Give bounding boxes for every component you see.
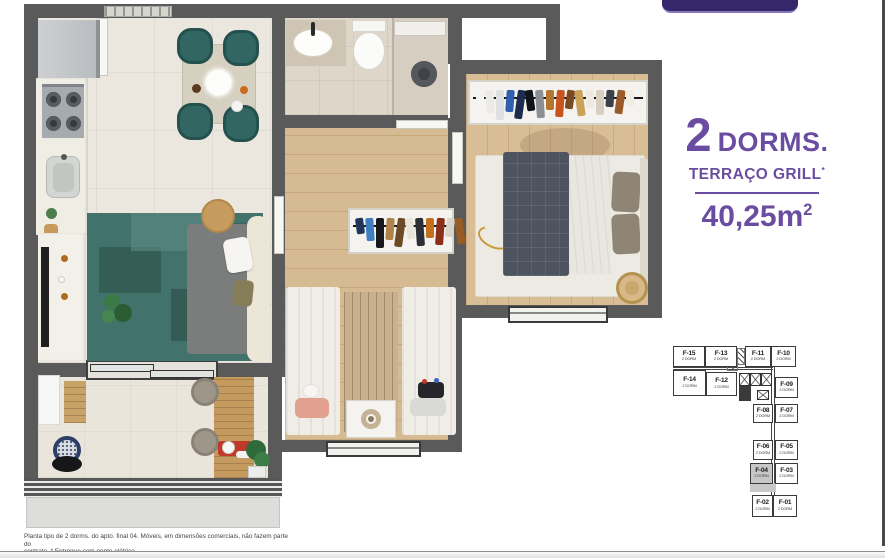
keyplan-unit-f-11: F-112 DORM [745, 346, 771, 367]
dining-chair [177, 28, 213, 64]
sheet-fold [569, 156, 611, 274]
keyplan-unit-f-05: F-052 DORM [775, 440, 798, 460]
pillow [611, 213, 641, 254]
keyplan-unit-f-01: F-012 DORM [773, 495, 797, 517]
dark-basket [52, 456, 82, 472]
keyplan-unit-f-08: F-082 DORM [753, 404, 773, 423]
clothes-row [356, 218, 448, 248]
terrace-pouf [191, 428, 219, 456]
dining-chair [177, 103, 213, 140]
cup [58, 276, 65, 283]
feature-text: TERRAÇO GRILL [689, 166, 822, 183]
floorplan-page: 2 DORMS. TERRAÇO GRILL* 40,25m2 F-152 DO… [0, 0, 885, 558]
elevator-icon [757, 390, 769, 400]
balcony-slab [26, 497, 280, 528]
caption-line1: Planta tipo de 2 dorms. do apto. final 0… [24, 533, 296, 548]
toilet-tank [352, 20, 386, 32]
hanging-garment [546, 90, 554, 110]
clothes-row [476, 90, 642, 120]
feature-footnote-mark: * [821, 165, 825, 175]
toy-dot-blue [434, 378, 439, 383]
hanging-garment [496, 90, 504, 120]
bedroom2-clothes-rack [348, 208, 454, 254]
stove [42, 84, 84, 138]
pouf [616, 272, 648, 304]
dining-chair [223, 30, 259, 66]
top-tab-button[interactable] [662, 0, 798, 13]
terrace-railing [24, 478, 282, 497]
keyplan-unit-f-10: F-102 DORM [771, 346, 796, 367]
hanging-garment [585, 90, 594, 109]
burner [66, 116, 81, 131]
keyplan-unit-f-13: F-132 DORM [705, 346, 737, 367]
hanging-garment [365, 218, 375, 242]
hanging-garment [605, 90, 614, 108]
info-panel: 2 DORMS. TERRAÇO GRILL* 40,25m2 [665, 114, 849, 234]
plant-pot [46, 208, 57, 219]
stair-core [739, 386, 751, 401]
pillow [611, 171, 641, 212]
laundry-cabinet [38, 375, 60, 425]
planter [248, 466, 266, 478]
bedroom2-door [274, 196, 284, 254]
dorms-label: DORMS. [718, 127, 829, 158]
leaf [102, 310, 115, 323]
sofa-pillow-white [222, 236, 254, 274]
drink [240, 86, 248, 94]
toy [418, 382, 444, 398]
fridge [38, 20, 100, 78]
kitchen-sink [46, 156, 80, 198]
hanging-garment [355, 218, 365, 235]
candle [61, 255, 68, 262]
keyplan: F-152 DORMF-132 DORMF-112 DORMF-102 DORM… [665, 342, 881, 527]
hanging-garment [596, 90, 604, 115]
area-number: 40,25m [702, 200, 804, 233]
leaf [114, 304, 132, 322]
hanging-garment [405, 218, 416, 240]
wall-terrace-right [268, 377, 282, 478]
plate [192, 84, 201, 93]
duvet-dark [503, 152, 569, 276]
elevator-icon [739, 373, 750, 386]
keyplan-unit-f-06: F-062 DORM [753, 440, 773, 460]
hanging-garment [415, 218, 425, 246]
bedroom2-window [326, 441, 421, 457]
nightstand [346, 400, 396, 438]
dorms-line: 2 DORMS. [685, 114, 828, 158]
terrace-sliding-door [86, 360, 218, 380]
keyplan-unit-f-03: F-032 DORM [775, 463, 798, 484]
table-centerpiece [206, 70, 231, 95]
wall-bathroom-left [272, 4, 285, 118]
shower-drain [411, 61, 437, 87]
sliding-panel [90, 364, 154, 372]
grill-table [214, 377, 254, 478]
kitchen-window [104, 6, 172, 17]
burner [46, 116, 61, 131]
sofa-pillow-olive [232, 279, 255, 307]
headboard [640, 158, 648, 294]
keyplan-unit-f-02: F-022 DORM [752, 495, 773, 517]
pillow-gray [410, 398, 446, 416]
hanging-garment [625, 90, 635, 107]
wall-right [648, 60, 662, 318]
decor-flower [304, 385, 318, 397]
hanging-garment [376, 218, 384, 248]
floorplan [0, 0, 662, 532]
keyplan-unit-f-14: F-142 DORM [673, 370, 706, 396]
dining-chair [223, 105, 259, 142]
dorms-number: 2 [685, 114, 711, 156]
hanging-garment [535, 90, 545, 118]
hanging-garment [485, 90, 495, 114]
wood-shelf [64, 381, 86, 423]
sink-basin [53, 163, 74, 192]
candle [61, 293, 68, 300]
terrace-pouf [191, 378, 219, 406]
white-cup [222, 441, 235, 454]
hanging-garment [555, 90, 565, 117]
bedroom1-window [508, 306, 608, 323]
vent-hatch [737, 348, 745, 365]
divider-line [695, 192, 819, 194]
sofa [187, 216, 269, 362]
wall-bath-right [448, 4, 462, 64]
shower-niche [394, 21, 446, 36]
elevator-icon [761, 373, 772, 386]
highlight-shade [750, 483, 776, 492]
keyplan-unit-f-12: F-122 DORM [706, 372, 737, 396]
hanging-garment [614, 90, 625, 115]
bathroom-door [396, 120, 448, 129]
bottom-divider-band [0, 551, 885, 558]
keyplan-unit-f-09: F-092 DORM [775, 377, 798, 398]
area-superscript: 2 [803, 201, 812, 219]
feature-label: TERRAÇO GRILL* [689, 165, 825, 184]
keyplan-unit-f-15: F-152 DORM [673, 346, 705, 367]
side-table [201, 199, 235, 233]
hanging-garment [385, 218, 395, 241]
hanging-garment [505, 90, 515, 113]
burner [46, 92, 61, 107]
hanging-garment [475, 90, 485, 107]
hanging-garment [574, 90, 586, 117]
toy-dot-red [422, 379, 427, 384]
toilet-bowl [353, 32, 385, 70]
area-value: 40,25m2 [702, 200, 813, 234]
bedroom1-door [452, 132, 463, 184]
bedroom2-bed-right [402, 287, 456, 435]
elevator-icon [750, 373, 761, 386]
burner [66, 92, 81, 107]
keyplan-unit-f-04: F-042 DORM [750, 463, 773, 484]
hanging-garment [426, 218, 434, 238]
nightstand-dot [368, 416, 374, 422]
bath-faucet [311, 22, 315, 36]
faucet [61, 154, 67, 160]
pillow-salmon [295, 398, 329, 418]
wall-bedroom1-top [450, 60, 662, 74]
hanging-garment [525, 90, 536, 112]
hanging-garment [435, 218, 445, 245]
bedroom2-bed-left [286, 287, 340, 435]
tv [41, 247, 49, 347]
rug-patch [99, 247, 161, 293]
sliding-panel [150, 370, 214, 378]
keyplan-unit-f-07: F-072 DORM [775, 404, 798, 423]
plate [231, 100, 243, 112]
bedroom1-clothes-rack [468, 80, 648, 125]
